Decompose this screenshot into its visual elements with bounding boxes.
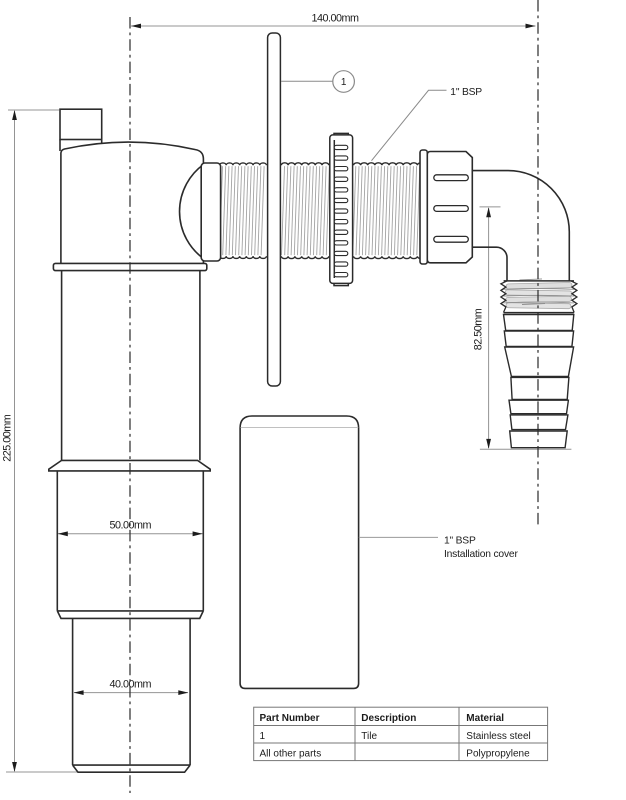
svg-text:1: 1 (341, 77, 347, 88)
svg-text:1" BSP: 1" BSP (444, 536, 476, 547)
svg-text:1: 1 (260, 731, 266, 742)
svg-text:All other parts: All other parts (260, 748, 322, 759)
svg-text:140.00mm: 140.00mm (311, 12, 359, 24)
svg-text:Description: Description (361, 713, 416, 724)
svg-text:Installation cover: Installation cover (444, 549, 518, 560)
svg-text:Polypropylene: Polypropylene (466, 748, 530, 759)
svg-text:Tile: Tile (361, 731, 377, 742)
svg-text:82.50mm: 82.50mm (473, 308, 485, 350)
svg-text:225.00mm: 225.00mm (2, 414, 14, 462)
svg-text:Stainless steel: Stainless steel (466, 731, 530, 742)
svg-text:Part Number: Part Number (260, 713, 320, 724)
svg-text:Material: Material (466, 713, 504, 724)
svg-text:1" BSP: 1" BSP (450, 87, 482, 98)
